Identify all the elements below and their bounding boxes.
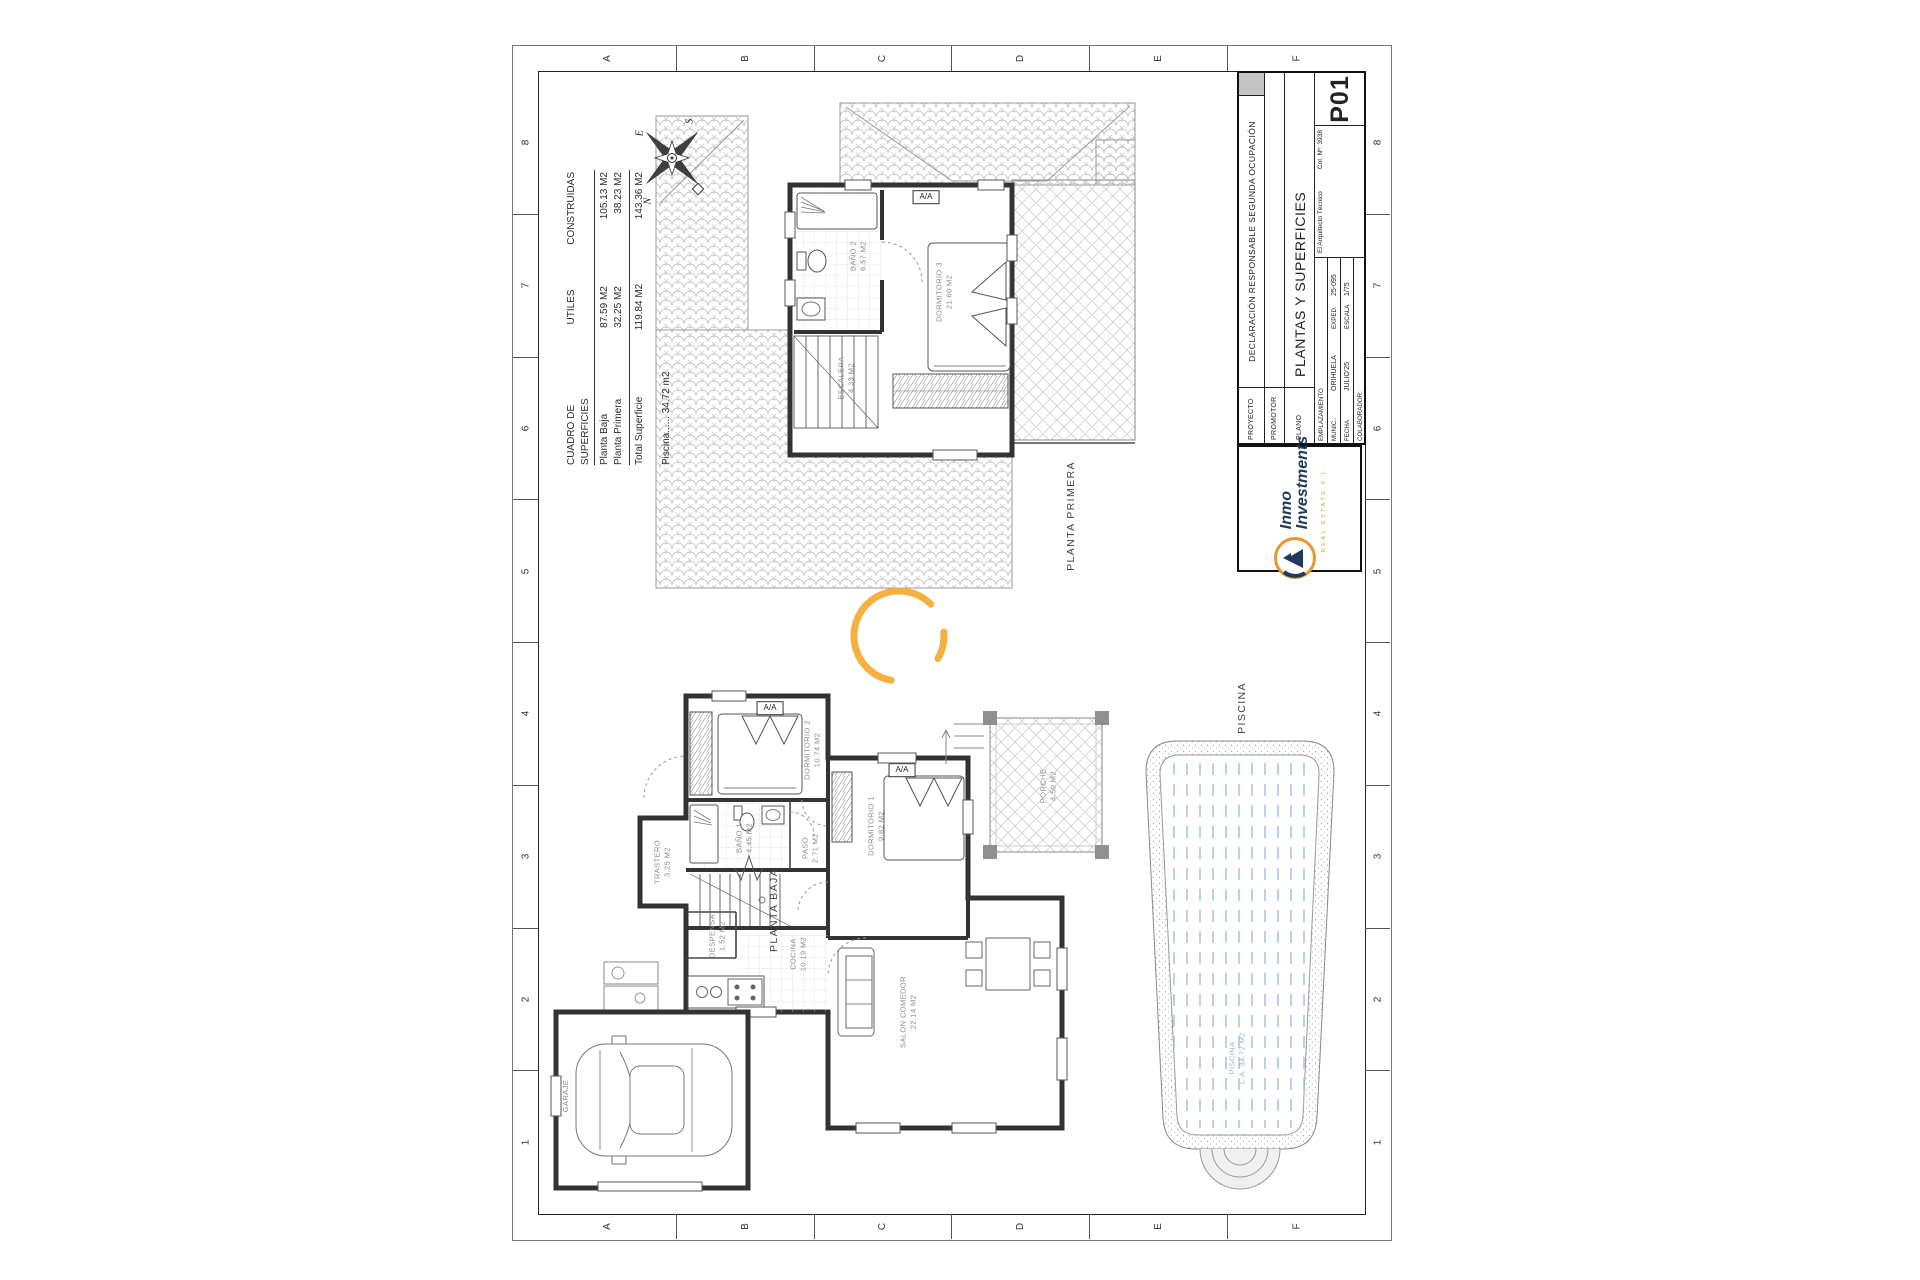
plan-label-line: 4.45 M2 bbox=[744, 823, 754, 853]
munic-value: ORIHUELA bbox=[1331, 329, 1338, 391]
surface-table-title: CUADRO DE SUPERFICIES bbox=[565, 347, 592, 465]
munic-label: MUNIC.: bbox=[1331, 391, 1338, 443]
row-label: Planta Baja bbox=[598, 347, 612, 465]
architect-cell: El Arquitecto Técnico Col. Nº: 3938 bbox=[1315, 125, 1366, 258]
title-block: PROYECTO DECLARACIÓN RESPONSABLE SEGUNDA… bbox=[1237, 71, 1366, 445]
plan-label-line: PISCINA bbox=[1227, 1032, 1237, 1084]
plan-label: DESPENSA1.52 M2 bbox=[707, 914, 727, 958]
plan-label: PORCHE4.50 M2 bbox=[1038, 769, 1058, 804]
architect-title: El Arquitecto Técnico bbox=[1317, 191, 1324, 253]
plan-label: BAÑO 14.45 M2 bbox=[734, 823, 754, 853]
plan-label-line: S bbox=[684, 118, 697, 123]
plan-label-line: DESPENSA bbox=[707, 914, 717, 958]
plan-label: DORMITORIO 19.82 M2 bbox=[866, 796, 886, 856]
pool-plan bbox=[1146, 741, 1334, 1189]
plan-label-line: 21.60 M2 bbox=[944, 262, 954, 322]
plan-label: E bbox=[634, 130, 647, 137]
colaborador-label: COLABORADOR: bbox=[1357, 258, 1364, 443]
plan-label: SALON COMEDOR22.14 M2 bbox=[898, 976, 918, 1048]
surface-table-header: CUADRO DE SUPERFICIES UTILES CONSTRUIDAS bbox=[565, 170, 595, 465]
sheet-number: P01 bbox=[1315, 73, 1366, 125]
plan-label-line: 2.71 M2 bbox=[810, 833, 820, 863]
revision-cell bbox=[1239, 73, 1264, 96]
plan-label-line: 10.19 M2 bbox=[798, 937, 808, 971]
plan-label-line: PASO bbox=[800, 833, 810, 863]
row-utiles: 32.25 M2 bbox=[612, 267, 626, 347]
emplazamiento-label: EMPLAZAMIENTO bbox=[1318, 258, 1325, 443]
plan-label: S bbox=[684, 118, 697, 123]
total-utiles: 119.84 M2 bbox=[633, 267, 647, 347]
plan-label-line: DORMITORIO 1 bbox=[866, 796, 876, 856]
total-construidas: 143.36 M2 bbox=[633, 172, 647, 267]
plan-label-line: DORMITORIO 2 bbox=[802, 720, 812, 780]
plan-label-line: 4.33 M2 bbox=[846, 356, 856, 399]
title-block-fields: EMPLAZAMIENTO MUNIC.: ORIHUELA EXPED. 25… bbox=[1315, 258, 1366, 443]
escala-label: ESCALA bbox=[1344, 296, 1351, 329]
plan-label: DORMITORIO 210.74 M2 bbox=[802, 720, 822, 780]
promotor-label: PROMOTOR bbox=[1265, 387, 1284, 443]
planta-baja-plan bbox=[551, 691, 1109, 1191]
air-conditioning-unit-label: A/A bbox=[757, 701, 784, 715]
plan-label-line: SALON COMEDOR bbox=[898, 976, 908, 1048]
loading-arc bbox=[854, 591, 944, 680]
plan-label: DORMITORIO 321.60 M2 bbox=[934, 262, 954, 322]
escala-value: 1/75 bbox=[1344, 258, 1351, 296]
fecha-value: JULIO'25 bbox=[1344, 329, 1351, 391]
plan-label: N bbox=[642, 197, 655, 204]
fecha-label: FECHA bbox=[1344, 391, 1351, 443]
plano-value: PLANTAS Y SUPERFICIES bbox=[1285, 73, 1314, 387]
table-total-row: Total Superficie 119.84 M2 143.36 M2 bbox=[629, 170, 647, 465]
floor-plan-drawing bbox=[0, 0, 1920, 1280]
plan-label-line: COCINA bbox=[788, 937, 798, 971]
plan-label: PASO2.71 M2 bbox=[800, 833, 820, 863]
plan-label-line: N bbox=[642, 197, 655, 204]
plan-label-line: 9.82 M2 bbox=[876, 796, 886, 856]
plan-label: ESCALERA4.33 M2 bbox=[836, 356, 856, 399]
logo-line2: Investments bbox=[1295, 436, 1311, 529]
proyecto-value: DECLARACIÓN RESPONSABLE SEGUNDA OCUPACIÓ… bbox=[1239, 96, 1264, 387]
plan-label: COCINA10.19 M2 bbox=[788, 937, 808, 971]
architect-college-number: Col. Nº: 3938 bbox=[1317, 130, 1324, 169]
plan-label: PISCINA bbox=[1236, 682, 1250, 734]
air-conditioning-unit-label: A/A bbox=[913, 190, 940, 204]
plan-label-line: TRASTERO bbox=[652, 840, 662, 884]
plan-label-line: L.A. 34.72 M2 bbox=[1237, 1032, 1247, 1084]
plan-label-line: 6.57 M2 bbox=[858, 241, 868, 271]
plan-label-line: 4.50 M2 bbox=[1048, 769, 1058, 804]
logo-icon bbox=[1272, 535, 1318, 581]
row-utiles: 87.59 M2 bbox=[598, 267, 612, 347]
plan-label-line: PLANTA PRIMERA bbox=[1065, 461, 1079, 571]
plan-label-line: BAÑO 1 bbox=[734, 823, 744, 853]
plan-label: PLANTA BAJA bbox=[768, 868, 782, 952]
plan-label-line: PLANTA BAJA bbox=[768, 868, 782, 952]
surface-table: CUADRO DE SUPERFICIES UTILES CONSTRUIDAS… bbox=[565, 170, 710, 465]
plan-label: TRASTERO3.25 M2 bbox=[652, 840, 672, 884]
logo-tagline: REAL ESTATE S.L. bbox=[1321, 465, 1327, 553]
plan-label-line: 3.25 M2 bbox=[662, 840, 672, 884]
plan-label-line: 22.14 M2 bbox=[908, 976, 918, 1048]
plan-label-line: GARAJE bbox=[561, 1080, 571, 1112]
total-label: Total Superficie bbox=[633, 347, 647, 465]
air-conditioning-unit-label: A/A bbox=[889, 763, 916, 777]
plan-label-line: BAÑO 2 bbox=[848, 241, 858, 271]
row-construidas: 38.23 M2 bbox=[612, 172, 626, 267]
piscina-area-note: Piscina...... 34.72 m2 bbox=[661, 170, 672, 465]
plan-label-line: 1.52 M2 bbox=[717, 914, 727, 958]
plano-label: PLANO bbox=[1285, 387, 1314, 443]
plan-label-line: 10.74 M2 bbox=[812, 720, 822, 780]
plan-label-line: PORCHE bbox=[1038, 769, 1048, 804]
planta-primera-plan bbox=[656, 103, 1135, 588]
logo-line1: Inmo bbox=[1279, 436, 1295, 529]
row-label: Planta Primera bbox=[612, 347, 626, 465]
plan-label-line: PISCINA bbox=[1236, 682, 1250, 734]
table-row: Planta Primera 32.25 M2 38.23 M2 bbox=[612, 170, 626, 465]
exped-label: EXPED. bbox=[1331, 296, 1338, 329]
row-construidas: 105.13 M2 bbox=[598, 172, 612, 267]
plan-label-line: ESCALERA bbox=[836, 356, 846, 399]
col-construidas: CONSTRUIDAS bbox=[565, 172, 579, 267]
plan-label-line: DORMITORIO 3 bbox=[934, 262, 944, 322]
exped-value: 25-095 bbox=[1331, 258, 1338, 296]
table-row: Planta Baja 87.59 M2 105.13 M2 bbox=[598, 170, 612, 465]
promotor-value bbox=[1265, 73, 1284, 387]
logo: Inmo Investments REAL ESTATE S.L. bbox=[1237, 445, 1362, 572]
plan-label: PLANTA PRIMERA bbox=[1065, 461, 1079, 571]
plan-label-line: E bbox=[634, 130, 647, 137]
plan-label: GARAJE bbox=[561, 1080, 571, 1112]
plan-label: BAÑO 26.57 M2 bbox=[848, 241, 868, 271]
plan-label: PISCINAL.A. 34.72 M2 bbox=[1227, 1032, 1247, 1084]
proyecto-label: PROYECTO bbox=[1239, 387, 1264, 443]
col-utiles: UTILES bbox=[565, 267, 579, 347]
